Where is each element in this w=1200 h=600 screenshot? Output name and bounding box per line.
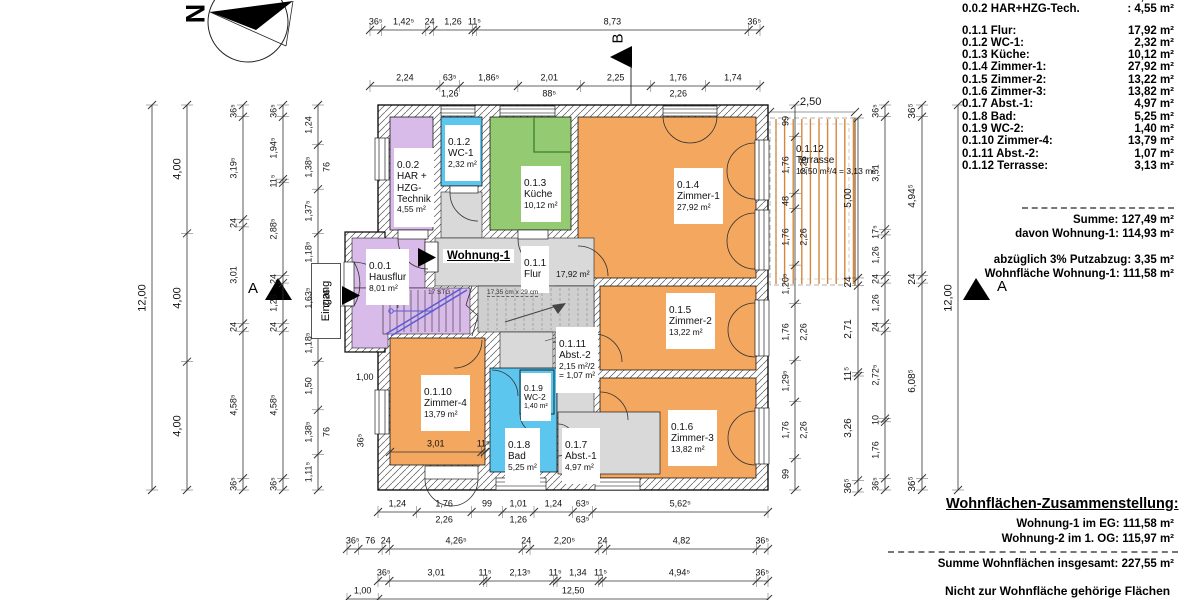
dim-text: 11⁵ <box>549 569 562 578</box>
dim-text: 24 <box>872 322 881 332</box>
dim-text: 1,26 <box>509 516 527 525</box>
totals-sum-line: Summe Wohnflächen insgesamt: 227,55 m² <box>938 557 1174 572</box>
dim-text: 24 <box>598 537 608 546</box>
dim-text: 12,00 <box>138 284 149 312</box>
schedule-room-label: 0.1.6 Zimmer-3: <box>962 86 1046 98</box>
dim-text: 2,25 <box>607 74 625 83</box>
schedule-row: 0.1.3 Küche:10,12 m² <box>962 49 1174 61</box>
dim-text: 1,26 <box>872 295 881 313</box>
room-label-abst2: 0.1.11Abst.-22,15 m²/2 = 1,07 m² <box>556 327 598 393</box>
schedule-room-area: 10,12 m² <box>1128 49 1174 61</box>
schedule-room-area: 17,92 m² <box>1128 25 1174 37</box>
dim-text: 63⁵ <box>576 500 590 509</box>
dim-text: 36⁵ <box>908 103 918 118</box>
dim-text: 2,26 <box>800 421 809 439</box>
dim-text: 1,18⁵ <box>305 332 314 353</box>
dim-text: 1,00 <box>354 587 372 596</box>
dim-text: 1,24 <box>305 116 314 134</box>
dim-text: 1,76 <box>435 500 453 509</box>
dim-text: 36⁵ <box>908 477 918 492</box>
schedule-room-area: : 4,55 m² <box>1127 3 1174 15</box>
schedule-room-label: 0.1.4 Zimmer-1: <box>962 61 1046 73</box>
section-letter-a-left: A <box>248 280 258 297</box>
floor-plan-sheet: { "north_label": "N", "section_markers":… <box>0 0 1200 600</box>
dim-text: 24 <box>270 322 279 332</box>
dim-text: 48 <box>782 196 791 206</box>
room-area-flur: 17,92 m² <box>553 258 593 292</box>
dim-text: 2,26 <box>800 228 809 246</box>
dim-text: 2,13⁵ <box>510 569 531 578</box>
schedule-room-label: 0.1.11 Abst.-2: <box>962 148 1039 160</box>
dim-text: 36⁵ <box>230 104 239 118</box>
dim-text: 11⁵ <box>477 440 490 449</box>
dim-text: 24 <box>270 274 279 284</box>
dim-text: 4,58⁵ <box>270 394 279 415</box>
dim-text: 1,42⁵ <box>393 18 414 27</box>
schedule-row: 0.1.2 WC-1:2,32 m² <box>962 37 1174 49</box>
dim-text: 1,24 <box>545 500 563 509</box>
schedule-row: 0.1.11 Abst.-2:1,07 m² <box>962 148 1174 160</box>
summary-davon: davon Wohnung-1: 114,93 m² <box>985 227 1174 241</box>
dim-text: 8,73 <box>604 18 622 27</box>
dim-text: 1,38⁵ <box>305 156 314 177</box>
dim-text: 11⁵ <box>844 367 854 382</box>
north-arrow-icon <box>208 0 293 62</box>
dim-text: 4,94⁵ <box>908 184 918 208</box>
area-summary: Summe: 127,49 m² davon Wohnung-1: 114,93… <box>985 213 1174 281</box>
schedule-room-area: 5,25 m² <box>1134 111 1174 123</box>
dim-text: 24 <box>521 537 531 546</box>
dim-text: 36⁵ <box>872 104 881 118</box>
dim-text: 1,20⁵ <box>782 274 791 295</box>
dim-text: 76 <box>323 427 332 437</box>
dim-text: 11⁵ <box>468 18 481 27</box>
dim-text: 1,74 <box>724 74 742 83</box>
schedule-room-label: 0.0.2 HAR+HZG-Tech. <box>962 3 1080 15</box>
dim-text: 11⁵ <box>594 569 607 578</box>
dim-text: 1,26 <box>444 18 462 27</box>
totals-heading: Wohnflächen-Zusammenstellung: <box>946 496 1179 512</box>
totals-row1-value: 111,58 m² <box>1123 518 1174 530</box>
totals-rows: Wohnung-1 im EG: 111,58 m² Wohnung-2 im … <box>1002 517 1174 547</box>
dim-text: 1,26 <box>872 246 881 264</box>
dim-text: 12,50 <box>562 587 585 596</box>
dim-text: 4,58⁵ <box>230 394 239 415</box>
dim-text: 63⁵ <box>576 516 590 525</box>
schedule-row: 0.0.2 HAR+HZG-Tech.: 4,55 m² <box>962 3 1174 15</box>
dim-text: 1,26 <box>441 90 459 99</box>
dim-text: 63⁵ <box>443 74 457 83</box>
dim-text: 1,18⁵ <box>305 242 314 263</box>
dim-text: 2,01 <box>540 74 558 83</box>
schedule-row: 0.1.7 Abst.-1:4,97 m² <box>962 98 1174 110</box>
dim-text: 3,01 <box>230 266 239 284</box>
schedule-room-area: 3,13 m² <box>1134 160 1174 172</box>
dim-text: 1,01 <box>509 500 527 509</box>
schedule-room-label: 0.1.5 Zimmer-2: <box>962 74 1046 86</box>
schedule-room-label: 0.1.2 WC-1: <box>962 37 1024 49</box>
schedule-room-label: 0.1.3 Küche: <box>962 49 1030 61</box>
schedule-row: 0.1.6 Zimmer-3:13,82 m² <box>962 86 1174 98</box>
room-label-wc1: 0.1.2WC-12,32 m² <box>445 125 480 181</box>
schedule-room-area: 27,92 m² <box>1128 61 1174 73</box>
wall-thickness-dim: 36⁵ <box>356 434 365 448</box>
dim-text: 2,88⁵ <box>270 218 279 239</box>
dim-text: 11⁵ <box>479 569 492 578</box>
room-label-bad: 0.1.8Bad5,25 m² <box>505 428 540 484</box>
dim-text: 6,08⁵ <box>908 369 918 393</box>
schedule-room-label: 0.1.10 Zimmer-4: <box>962 135 1053 147</box>
dim-text: 99 <box>782 116 791 126</box>
dim-text: 24 <box>844 276 854 287</box>
schedule-room-area: 1,07 m² <box>1134 148 1174 160</box>
room-label-zimmer3: 0.1.6Zimmer-313,82 m² <box>668 410 717 466</box>
dim-text: 1,37⁵ <box>305 201 314 222</box>
dim-text: 1,76 <box>782 421 791 439</box>
schedule-row: 0.1.8 Bad:5,25 m² <box>962 111 1174 123</box>
dim-text: 2,26 <box>323 289 332 307</box>
dim-text: 36⁵ <box>230 477 239 491</box>
totals-footnote: Nicht zur Wohnfläche gehörige Flächen <box>945 584 1195 598</box>
dim-text: 36⁵ <box>755 537 769 546</box>
terrace-width-dim: 2,50 <box>800 97 821 108</box>
dim-text: 3,26 <box>844 418 854 437</box>
dim-text: 1,38⁵ <box>305 421 314 442</box>
dim-text: 11⁵ <box>270 174 279 187</box>
dim-text: 36⁵ <box>270 477 279 491</box>
dim-text: 1,24 <box>389 500 407 509</box>
apartment-label: Wohnung-1 <box>443 249 514 263</box>
dim-text: 1,50 <box>305 377 314 395</box>
dim-text: 24 <box>425 18 435 27</box>
schedule-row: 0.1.10 Zimmer-4:13,79 m² <box>962 135 1174 147</box>
dim-text: 99 <box>782 469 791 479</box>
room-label-har: 0.0.2HAR + HZG- Technik4,55 m² <box>394 148 434 227</box>
stair-note-steps: 17 STG <box>428 289 450 296</box>
dim-text: 1,26 <box>270 295 279 313</box>
dim-text: 2,26 <box>435 516 453 525</box>
dim-text: 36⁵ <box>844 479 854 494</box>
dim-text: 1,94⁵ <box>270 137 279 158</box>
dim-text: 2,24 <box>396 74 414 83</box>
dim-text: 5,00 <box>844 188 854 207</box>
dim-text: 4,94⁵ <box>669 569 690 578</box>
dim-text: 24 <box>872 274 881 284</box>
room-label-abst1: 0.1.7Abst.-14,97 m² <box>562 428 600 484</box>
schedule-row: 0.1.12 Terrasse:3,13 m² <box>962 160 1174 172</box>
dim-text: 24 <box>908 274 918 285</box>
dim-text: 2,20⁵ <box>554 537 575 546</box>
room-label-kueche: 0.1.3Küche10,12 m² <box>521 166 561 222</box>
dim-text: 2,26 <box>800 323 809 341</box>
dim-text: 2,72⁵ <box>872 364 881 385</box>
dim-text: 3,51 <box>872 164 881 182</box>
dim-text: 1,76 <box>782 228 791 246</box>
schedule-room-label: 0.1.9 WC-2: <box>962 123 1024 135</box>
dim-text: 3,01 <box>428 569 446 578</box>
dim-text: 1,11⁵ <box>305 462 314 483</box>
dim-text: 24 <box>381 537 391 546</box>
vestibule-dim: 1,00 <box>356 373 374 382</box>
dim-text: 1,29⁵ <box>782 370 791 391</box>
schedule-row: 0.1.9 WC-2:1,40 m² <box>962 123 1174 135</box>
dim-text: 24 <box>230 218 239 228</box>
dim-text: 76 <box>365 537 375 546</box>
section-letter-b-top: B <box>610 33 627 43</box>
totals-row1-label: Wohnung-1 im EG: <box>1016 518 1119 530</box>
summary-summe: Summe: 127,49 m² <box>985 213 1174 227</box>
dim-text: 36⁵ <box>747 18 761 27</box>
dim-text: 99 <box>482 500 492 509</box>
room-schedule: 0.0.1 Hausflur:8,01 m²0.0.2 HAR+HZG-Tech… <box>962 0 1174 172</box>
room-label-zimmer1: 0.1.4Zimmer-127,92 m² <box>674 168 723 224</box>
dim-text: 36⁵ <box>369 18 383 27</box>
room-label-hausflur: 0.0.1Hausflur8,01 m² <box>366 249 409 305</box>
dim-text: 17⁵ <box>872 225 881 239</box>
dim-text: 3,01 <box>427 440 445 449</box>
dim-text: 1,63⁵ <box>305 287 314 308</box>
dim-text: 4,82 <box>673 537 691 546</box>
dim-text: 1,76 <box>872 441 881 459</box>
north-label: N <box>180 4 211 24</box>
dim-text: 1,86⁵ <box>478 74 499 83</box>
dim-text: 3,19⁵ <box>230 157 239 178</box>
dim-text: 36⁵ <box>755 569 769 578</box>
room-label-wc2: 0.1.9WC-21,40 m² <box>521 373 551 421</box>
summary-wohnflaeche: Wohnfläche Wohnung-1: 111,58 m² <box>985 267 1174 281</box>
totals-separator <box>888 551 1178 553</box>
schedule-room-area: 1,40 m² <box>1134 123 1174 135</box>
schedule-room-label: 0.1.7 Abst.-1: <box>962 98 1033 110</box>
dim-text: 1,76 <box>669 74 687 83</box>
dim-text: 10 <box>872 415 881 425</box>
dim-text: 1,76 <box>782 323 791 341</box>
schedule-room-area: 2,32 m² <box>1134 37 1174 49</box>
schedule-row: 0.1.4 Zimmer-1:27,92 m² <box>962 61 1174 73</box>
dim-text: 12,00 <box>944 284 955 312</box>
totals-row2-label: Wohnung-2 im 1. OG: <box>1002 533 1119 545</box>
dim-text: 4,26⁵ <box>445 537 466 546</box>
dim-text: 36⁵ <box>872 477 881 491</box>
dim-text: 36⁵ <box>346 537 360 546</box>
schedule-room-area: 4,97 m² <box>1134 98 1174 110</box>
dim-text: 5,62⁵ <box>670 500 691 509</box>
dim-text: 4,00 <box>173 158 184 179</box>
dim-text: 2,71 <box>844 319 854 338</box>
schedule-room-label: 0.1.8 Bad: <box>962 111 1016 123</box>
schedule-room-area: 13,82 m² <box>1128 86 1174 98</box>
totals-row2-value: 115,97 m² <box>1122 533 1174 545</box>
schedule-room-label: 0.1.1 Flur: <box>962 25 1016 37</box>
totals-sum: Summe Wohnflächen insgesamt: 227,55 m² <box>938 557 1174 572</box>
room-label-zimmer4: 0.1.10Zimmer-413,79 m² <box>421 375 470 431</box>
dim-text: 36⁵ <box>377 569 391 578</box>
schedule-separator <box>1022 207 1174 209</box>
dim-text: 2,26 <box>669 90 687 99</box>
dim-text: 1,76 <box>782 156 791 174</box>
dim-text: 4,00 <box>173 287 184 308</box>
schedule-row: 0.1.5 Zimmer-2:13,22 m² <box>962 74 1174 86</box>
dim-text: 24 <box>230 322 239 332</box>
dim-text: 4,00 <box>173 415 184 436</box>
schedule-room-area: 13,22 m² <box>1128 74 1174 86</box>
room-label-flur: 0.1.1Flur <box>521 246 549 293</box>
schedule-row: 0.1.1 Flur:17,92 m² <box>962 25 1174 37</box>
dim-text: 36⁵ <box>270 104 279 118</box>
schedule-room-area: 13,79 m² <box>1128 135 1174 147</box>
dim-text: 76 <box>323 162 332 172</box>
stair-note-dims: 17,35 cm x 29 cm <box>487 289 538 297</box>
summary-abzug: abzüglich 3% Putzabzug: 3,35 m² <box>985 253 1174 267</box>
room-label-zimmer2: 0.1.5Zimmer-213,22 m² <box>666 293 715 349</box>
dim-text: 2,26 <box>800 156 809 174</box>
schedule-room-label: 0.1.12 Terrasse: <box>962 160 1048 172</box>
dim-text: 1,34 <box>569 569 587 578</box>
dim-text: 88⁵ <box>542 90 556 99</box>
